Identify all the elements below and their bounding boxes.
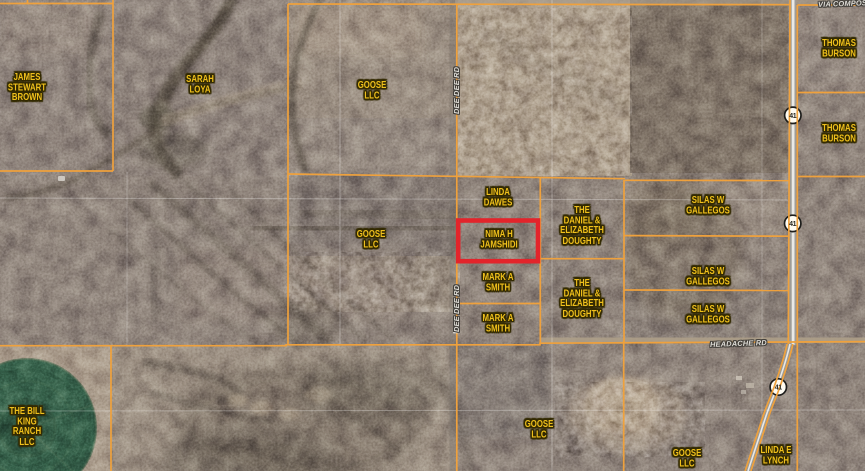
- svg-text:41: 41: [775, 385, 783, 392]
- svg-text:41: 41: [789, 113, 797, 120]
- svg-text:41: 41: [789, 221, 797, 228]
